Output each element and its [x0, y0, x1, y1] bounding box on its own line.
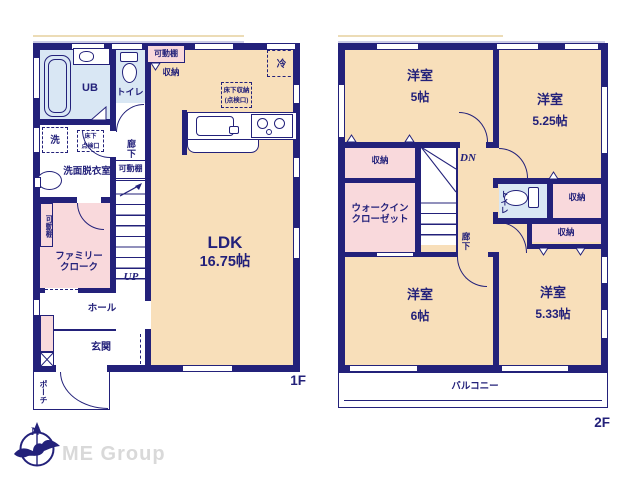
stairs-winder: [421, 147, 456, 193]
label-floor-1f: 1F: [280, 373, 306, 389]
window: [195, 43, 233, 50]
closet-door-mark: [548, 171, 559, 180]
label-room-nw: 洋室: [390, 68, 450, 83]
wall: [493, 252, 499, 365]
shoe-box-x-mark: [40, 352, 54, 367]
window: [502, 365, 568, 372]
underfloor-storage-line1: 床下収納: [222, 86, 251, 96]
label-shelf-mid: 可動棚: [116, 164, 145, 173]
compass-north-icon: N: [12, 418, 62, 472]
kitchen-island-edge: [187, 140, 259, 153]
closet-door-mark: [346, 134, 357, 143]
label-stairs-up: UP: [117, 271, 145, 284]
underfloor-storage-line2: (点検口): [222, 96, 251, 106]
label-room-ne: 洋室: [515, 92, 585, 107]
open-doorway-dashed: [45, 289, 78, 293]
wall: [145, 43, 151, 300]
window: [33, 128, 40, 152]
entrance-door-opening: [55, 365, 108, 372]
toilet-tank-icon: [120, 52, 138, 62]
label-washroom: 洗面脱衣室: [60, 166, 114, 177]
stove-burner: [266, 129, 272, 135]
eave-line: [338, 35, 503, 37]
window: [497, 43, 538, 50]
label-shelf-left: 可動棚: [40, 206, 53, 246]
door-arc-washroom: [82, 130, 110, 158]
label-room-sw-size: 6帖: [390, 309, 450, 323]
closet-door-mark: [538, 247, 549, 256]
eave-line: [33, 35, 244, 37]
closet-door-mark: [404, 134, 415, 143]
window: [293, 85, 300, 103]
underfloor-storage-kitchen: 床下収納 (点検口): [221, 82, 252, 108]
window: [293, 158, 300, 177]
label-toilet-1f: トイレ: [114, 87, 146, 98]
basin-icon: [79, 51, 94, 62]
label-corridor-1f: 廊下: [123, 133, 136, 165]
label-family-closet: ファミリー クローク: [48, 251, 110, 273]
entrance-edge-dashed: [140, 334, 142, 364]
label-wic-line2: クローゼット: [343, 214, 417, 225]
wall: [78, 288, 116, 293]
window: [293, 228, 300, 258]
wall: [488, 252, 499, 257]
label-wic: ウォークイン クローゼット: [343, 203, 417, 225]
window: [350, 365, 417, 372]
label-room-ne-size: 5.25帖: [515, 114, 585, 128]
door-arc-toilet-1f: [116, 104, 144, 132]
wall: [338, 252, 377, 257]
wall: [493, 218, 608, 224]
label-room-nw-size: 5帖: [390, 90, 450, 104]
label-ub: UB: [76, 82, 104, 95]
label-balcony: バルコニー: [435, 381, 515, 392]
label-storage-w: 収納: [366, 155, 394, 165]
label-corridor-2f: 廊下: [458, 226, 471, 256]
window: [565, 43, 598, 50]
window: [33, 300, 40, 315]
stove-burner: [257, 118, 268, 129]
stairs-up-arrow: [116, 180, 145, 200]
label-shelf-top: 可動棚: [147, 49, 185, 58]
wall: [33, 288, 45, 293]
window: [267, 43, 295, 50]
window: [112, 43, 142, 50]
balcony-rail-line: [344, 400, 602, 401]
brand-logo-text: ME Group: [62, 443, 166, 466]
window: [601, 257, 608, 283]
bathtub-inner: [48, 59, 67, 113]
kitchen-faucet-icon: [229, 126, 239, 134]
label-hall: ホール: [84, 303, 120, 314]
label-wic-line1: ウォークイン: [343, 203, 417, 214]
window: [338, 85, 345, 137]
label-floor-2f: 2F: [584, 415, 610, 431]
label-entrance: 玄関: [84, 342, 118, 354]
washbasin-tap: [34, 177, 41, 188]
floor-plan-sheet: 床下収納 (点検口) 床下 点検口 UB トイレ 可動棚 収納 冷 洗 廊下 可…: [0, 0, 640, 480]
label-storage-top: 収納: [155, 67, 187, 77]
label-ldk-size: 16.75帖: [182, 254, 268, 271]
door-opening: [110, 130, 116, 158]
stove-burner: [274, 118, 285, 129]
closet-door-mark: [575, 247, 586, 256]
stairs-2f: [421, 193, 456, 245]
wall: [145, 330, 151, 365]
window: [183, 365, 232, 372]
entrance-step-line: [53, 329, 116, 331]
window: [601, 310, 608, 338]
label-washer: 洗: [42, 135, 68, 146]
window: [33, 58, 40, 98]
wic-opening: [377, 252, 413, 257]
label-porch: ポーチ: [35, 375, 48, 409]
wall-opening: [145, 300, 151, 330]
shoe-cabinet: [40, 315, 54, 352]
wall: [493, 50, 499, 148]
label-family-closet-line2: クローク: [48, 262, 110, 273]
folding-door-mark: [90, 106, 107, 121]
label-room-se: 洋室: [518, 285, 588, 300]
wall: [413, 252, 458, 257]
label-fridge: 冷: [267, 59, 296, 70]
label-family-closet-line1: ファミリー: [48, 251, 110, 262]
label-stairs-down: DN: [454, 152, 482, 165]
window: [377, 43, 418, 50]
label-ldk: LDK: [185, 233, 265, 253]
wall: [547, 184, 553, 218]
compass-north-label: N: [31, 424, 40, 438]
label-storage-e2: 収納: [551, 227, 581, 237]
label-room-sw: 洋室: [390, 287, 450, 302]
toilet-tank-icon: [528, 187, 539, 208]
window: [601, 87, 608, 153]
label-toilet-2f: トイレ: [497, 186, 509, 217]
wall: [338, 178, 421, 183]
label-storage-e1: 収納: [562, 192, 592, 202]
label-room-se-size: 5.33帖: [518, 307, 588, 321]
